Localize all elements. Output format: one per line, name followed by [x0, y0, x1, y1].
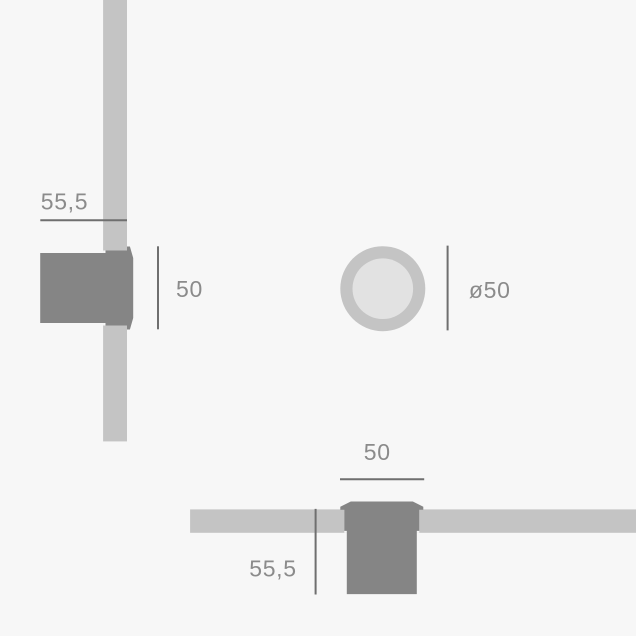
- svg-text:50: 50: [364, 439, 391, 465]
- svg-text:50: 50: [176, 276, 203, 302]
- svg-text:55,5: 55,5: [249, 555, 297, 581]
- svg-text:55,5: 55,5: [41, 189, 89, 215]
- svg-text:ø50: ø50: [469, 277, 511, 303]
